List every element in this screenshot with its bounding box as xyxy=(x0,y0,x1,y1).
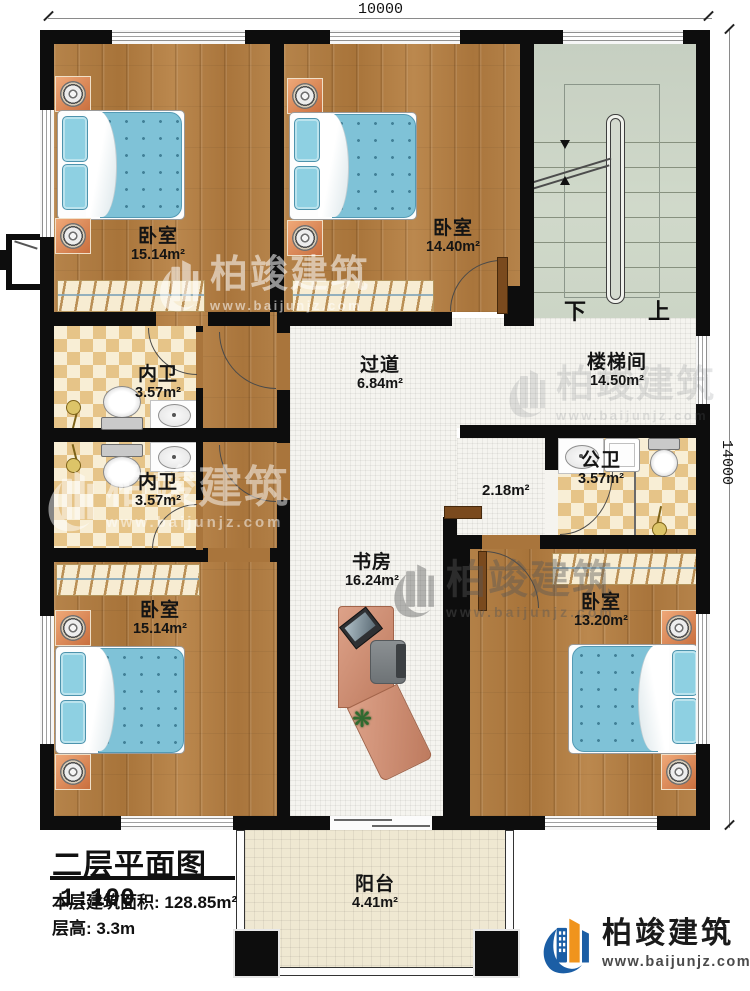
nightstand xyxy=(287,78,323,114)
floor-height-text: 层高: 3.3m xyxy=(52,914,135,939)
bed-pillow xyxy=(294,166,320,210)
room-area: 14.40m² xyxy=(426,239,480,255)
nightstand xyxy=(661,754,697,790)
room-area: 13.20m² xyxy=(574,613,628,629)
window-bottom-2 xyxy=(545,816,657,830)
door-gap-bedroom-br xyxy=(482,535,540,549)
sink-drain xyxy=(172,455,176,459)
room-area: 15.14m² xyxy=(133,621,187,637)
stair-up-label: 上 xyxy=(648,294,670,326)
chair-back xyxy=(396,644,406,678)
room-name: 卧室 xyxy=(574,592,628,613)
stair-handrail-inner xyxy=(610,118,621,300)
window-left-2 xyxy=(40,616,54,744)
wall-h-left-2 xyxy=(208,312,270,326)
window-bottom-1 xyxy=(121,816,233,830)
room-name: 卧室 xyxy=(131,226,185,247)
window-top-1 xyxy=(112,30,245,44)
lamp-icon xyxy=(60,615,86,641)
door-leaf-study xyxy=(444,506,482,519)
wall-bedroom-bl-right xyxy=(277,558,290,816)
window-top-stairwell xyxy=(563,30,683,44)
room-name: 书房 xyxy=(345,552,399,573)
bed-pillow xyxy=(60,700,86,744)
floor-area-text: 本层建筑面积: 128.85m² xyxy=(52,888,237,913)
bed-sheet xyxy=(638,645,669,751)
dimension-top-value: 10000 xyxy=(358,1,403,18)
bed-pillow xyxy=(672,698,698,744)
lamp-icon xyxy=(292,225,318,251)
nightstand xyxy=(55,610,91,646)
room-label-bedroom-bottom-right: 卧室13.20m² xyxy=(574,592,628,630)
room-name: 楼梯间 xyxy=(587,352,647,373)
brand-website: www.baijunjz.com xyxy=(602,954,750,970)
wardrobe xyxy=(57,280,205,312)
bed-pillow xyxy=(62,164,88,210)
room-label-ensuite-lower: 内卫3.57m² xyxy=(135,472,181,510)
room-area: 6.84m² xyxy=(357,376,403,392)
nightstand xyxy=(661,610,697,646)
room-name: 内卫 xyxy=(135,364,181,385)
dimension-tick xyxy=(43,11,54,22)
wall-jamb-corner xyxy=(504,286,534,326)
room-label-bedroom-bottom-left: 卧室15.14m² xyxy=(133,600,187,638)
room-label-balcony: 阳台4.41m² xyxy=(352,874,398,912)
room-name: 内卫 xyxy=(135,472,181,493)
room-label-nook-area: 2.18m² xyxy=(482,482,530,499)
brand-logo-icon xyxy=(540,914,594,974)
brand-footer: 柏竣建筑 www.baijunjz.com xyxy=(540,914,750,974)
wall-ensuite-divider xyxy=(54,428,290,442)
bumpout-stub xyxy=(0,250,8,270)
room-label-bedroom-top-left: 卧室15.14m² xyxy=(131,226,185,264)
wall-study-right xyxy=(443,517,457,830)
toilet-tank xyxy=(101,417,143,430)
shower-head-icon xyxy=(66,400,81,415)
title-underline xyxy=(50,876,235,880)
nightstand xyxy=(55,754,91,790)
bed-pillow xyxy=(62,116,88,162)
room-area: 3.57m² xyxy=(135,385,181,401)
lamp-icon xyxy=(666,615,692,641)
wall-stairwell-left xyxy=(520,44,534,318)
stair-arrow-down-icon xyxy=(560,140,570,149)
room-name: 阳台 xyxy=(352,874,398,895)
dimension-right-value: 14000 xyxy=(718,440,735,485)
sink-drain xyxy=(172,413,176,417)
wall-h-mid xyxy=(284,312,452,326)
wardrobe xyxy=(292,280,434,312)
room-area: 4.41m² xyxy=(352,895,398,911)
lamp-icon xyxy=(292,83,318,109)
balcony-sliding-door-panel-2 xyxy=(372,825,430,827)
door-gap-bedroom-bl xyxy=(208,548,270,562)
wall-bedrooms-divider xyxy=(270,44,284,312)
wall-bath-top xyxy=(460,425,710,438)
lamp-icon xyxy=(60,223,86,249)
room-area: 14.50m² xyxy=(587,373,647,389)
room-label-public-bath: 公卫3.57m² xyxy=(578,450,624,488)
balcony-column xyxy=(233,929,280,978)
room-name: 卧室 xyxy=(426,218,480,239)
room-area: 3.57m² xyxy=(135,493,181,509)
room-area: 3.57m² xyxy=(578,471,624,487)
bed-pillow xyxy=(60,652,86,696)
door-leaf-bedroom-top-mid xyxy=(497,257,508,314)
window-top-2 xyxy=(330,30,460,44)
lamp-icon xyxy=(60,81,86,107)
dimension-line-top xyxy=(48,18,712,19)
window-right-stairwell xyxy=(696,336,710,404)
room-label-hallway: 过道6.84m² xyxy=(357,355,403,393)
sink-counter xyxy=(150,442,198,472)
room-label-bedroom-top-mid: 卧室14.40m² xyxy=(426,218,480,256)
lamp-icon xyxy=(666,759,692,785)
room-name: 卧室 xyxy=(133,600,187,621)
wardrobe xyxy=(56,564,200,596)
door-gap-ensuite-upper xyxy=(196,332,203,388)
window-left-1 xyxy=(40,110,54,237)
brand-company: 柏竣建筑 xyxy=(602,919,750,949)
nightstand xyxy=(287,220,323,256)
dimension-tick xyxy=(703,11,714,22)
toilet-icon xyxy=(650,449,678,477)
wardrobe xyxy=(552,553,699,585)
door-gap-ensuite-lower xyxy=(196,500,203,550)
bed-pillow xyxy=(672,650,698,696)
dimension-line-right xyxy=(729,30,730,828)
room-area: 16.24m² xyxy=(345,573,399,589)
door-gap-vestibule-lower xyxy=(277,443,290,500)
room-name: 过道 xyxy=(357,355,403,376)
plant-icon: ❋ xyxy=(352,708,372,732)
floor-plan-page: 下 上 xyxy=(0,0,750,991)
window-right-bedroom xyxy=(696,614,710,744)
wall-bedroom-br-left xyxy=(457,549,470,816)
nightstand xyxy=(55,76,91,112)
stair-arrow-up-icon xyxy=(560,176,570,185)
door-gap-vestibule-upper xyxy=(277,333,290,390)
lamp-icon xyxy=(60,759,86,785)
nightstand xyxy=(55,218,91,254)
door-gap-public-bath xyxy=(545,470,558,535)
door-leaf-bedroom-br xyxy=(478,551,487,611)
stair-handrail xyxy=(606,114,625,304)
room-label-stairwell: 楼梯间14.50m² xyxy=(587,352,647,390)
wall-h-left-1 xyxy=(54,312,156,326)
shower-head-icon xyxy=(66,458,81,473)
room-label-study: 书房16.24m² xyxy=(345,552,399,590)
room-area: 15.14m² xyxy=(131,247,185,263)
room-name: 公卫 xyxy=(578,450,624,471)
balcony-column xyxy=(473,929,520,978)
bed-pillow xyxy=(294,118,320,162)
balcony-sliding-door-panel-1 xyxy=(334,819,392,821)
stair-down-label: 下 xyxy=(564,294,586,326)
room-label-ensuite-upper: 内卫3.57m² xyxy=(135,364,181,402)
sink-counter xyxy=(150,400,198,430)
